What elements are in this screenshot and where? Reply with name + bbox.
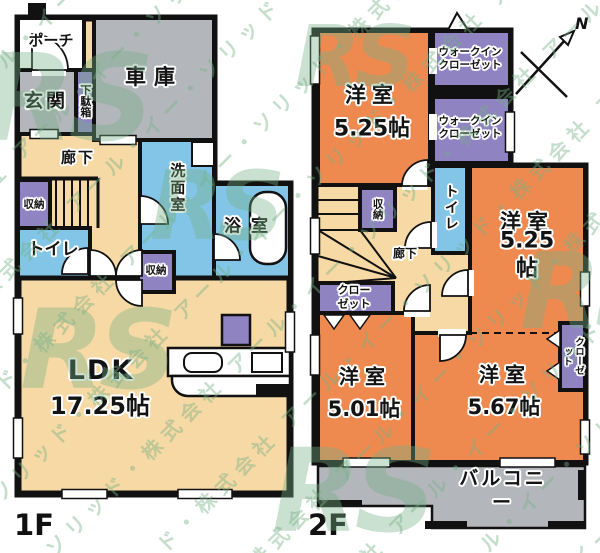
label-porch: ポーチ — [28, 32, 73, 51]
label-garage: 車庫 — [125, 64, 183, 90]
label-ldk: LDK — [68, 354, 135, 388]
label-storage-wash: 収納 — [146, 264, 167, 277]
label-bedroom-sw: 洋室 — [339, 365, 391, 390]
label-toilet-1f: トイレ — [28, 239, 79, 260]
wall-stub — [28, 3, 46, 16]
label-storage-2f: 収納 — [370, 199, 383, 220]
label-wic-lower: ウォークイン クローゼット — [439, 115, 502, 141]
compass-icon — [516, 31, 574, 97]
label-toilet-2f: トイレ — [441, 184, 459, 232]
kitchen-counter — [168, 348, 290, 396]
washer-pan — [192, 142, 214, 166]
label-hallway-2f: 廊下 — [393, 247, 417, 262]
label-bathroom: 浴室 — [224, 216, 278, 237]
label-bedroom-se: 洋室 — [479, 363, 531, 388]
label-closet-hall: クロー ゼット — [338, 283, 371, 311]
label-bedroom-se-size: 5.67帖 — [468, 394, 541, 420]
compass-north-label: N — [575, 14, 588, 33]
kitchen-stove — [252, 353, 282, 372]
label-bedroom-e-size: 5.25帖 — [491, 228, 564, 283]
label-balcony: バルコニー — [455, 467, 552, 515]
label-bedroom-nw: 洋室 — [345, 82, 399, 108]
label-wic-upper: ウォークイン クローゼット — [439, 46, 502, 72]
floorplan-stage: ポーチ 玄関 下駄箱 車庫 廊下 収納 トイレ 洗面室 収納 浴室 LDK 17… — [0, 0, 600, 553]
kitchen-sink — [184, 353, 222, 372]
floor1-tag: 1F — [14, 508, 54, 542]
label-bedroom-nw-size: 5.25帖 — [334, 115, 410, 143]
label-storage-hall: 収納 — [24, 198, 45, 211]
refrigerator-space — [222, 315, 250, 345]
floor2-tag: 2F — [308, 508, 348, 542]
roof-vent-mark — [448, 13, 468, 30]
label-hallway-1f: 廊下 — [61, 149, 95, 168]
label-entrance: 玄関 — [24, 90, 68, 114]
label-shoe-cabinet: 下駄箱 — [78, 85, 92, 118]
label-washroom: 洗面室 — [168, 163, 187, 214]
label-bedroom-sw-size: 5.01帖 — [328, 396, 401, 422]
label-closet-side: クローゼット — [560, 337, 584, 375]
label-ldk-size: 17.25帖 — [50, 391, 150, 421]
